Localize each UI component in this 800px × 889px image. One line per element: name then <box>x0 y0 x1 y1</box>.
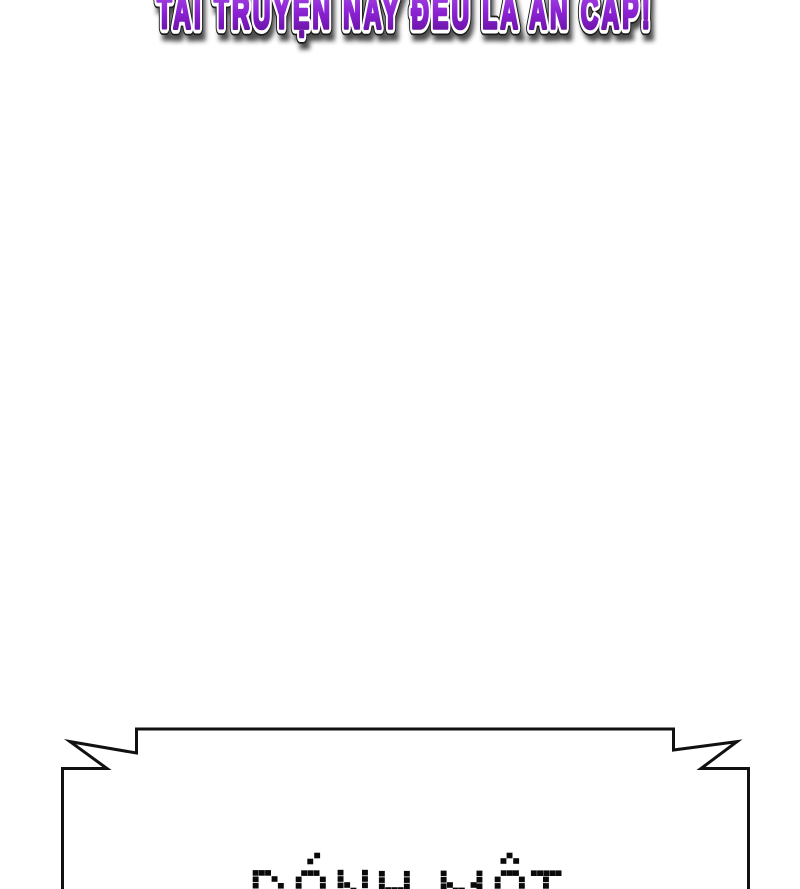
svg-text:TAI TRUYỆN NAY ĐEU LA AN CAP!: TAI TRUYỆN NAY ĐEU LA AN CAP! <box>157 0 653 38</box>
